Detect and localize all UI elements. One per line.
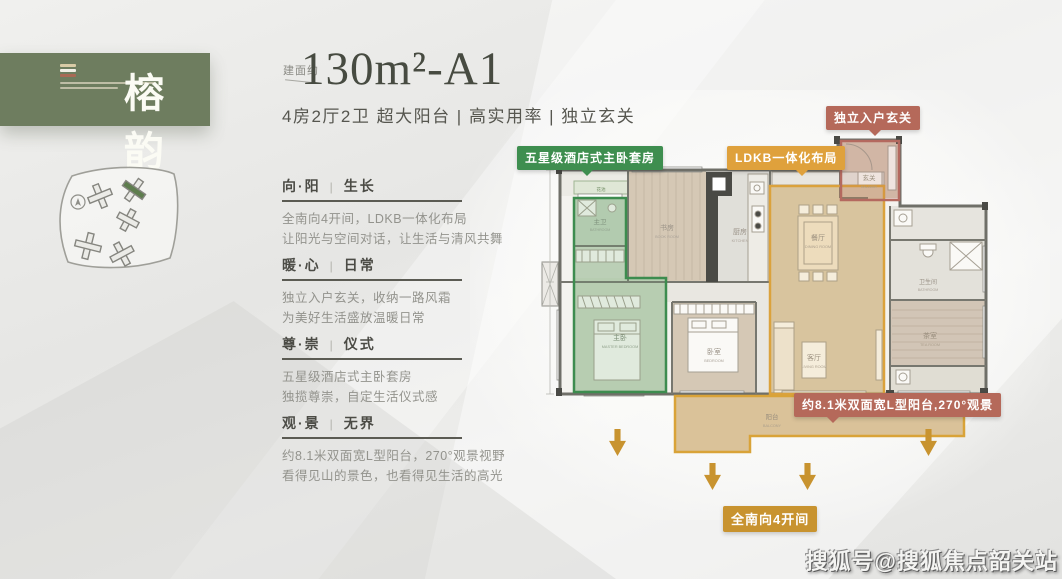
section-view: 观·景|无界 约8.1米双面宽L型阳台，270°观景视野 看得见山的景色，也看得… — [282, 413, 532, 486]
section-key: 观·景 — [282, 415, 321, 431]
section-honor: 尊·崇|仪式 五星级酒店式主卧套房 独揽尊崇，自定生活仪式感 — [282, 334, 532, 407]
entry-highlight — [841, 141, 899, 200]
section-line: 看得见山的景色，也看得见生活的高光 — [282, 467, 532, 487]
room-label-en: TEA ROOM — [920, 343, 940, 347]
brand-header: 榕韵 — [0, 53, 210, 126]
section-rule — [282, 358, 462, 360]
section-heading: 观·景|无界 — [282, 413, 532, 431]
room-label-en: HALLWAY — [861, 185, 878, 189]
section-sun: 向·阳|生长 全南向4开间，LDKB一体化布局 让阳光与空间对话，让生活与清风共… — [282, 176, 532, 249]
section-warm: 暖·心|日常 独立入户玄关，收纳一路风霜 为美好生活盛放温暖日常 — [282, 255, 532, 328]
badge-entry: 独立入户玄关 — [826, 106, 920, 130]
badge-south-facing: 全南向4开间 — [723, 506, 817, 532]
badge-ldkb: LDKB一体化布局 — [727, 146, 845, 170]
room-label: 书房 — [660, 223, 674, 232]
section-key: 尊·崇 — [282, 336, 321, 352]
room-label: 主卧 — [613, 333, 627, 342]
section-rule — [282, 200, 462, 202]
section-body: 约8.1米双面宽L型阳台，270°观景视野 看得见山的景色，也看得见生活的高光 — [282, 447, 532, 486]
section-heading: 向·阳|生长 — [282, 176, 532, 194]
room-label-en: BATHROOM — [590, 228, 611, 232]
section-value: 日常 — [344, 257, 376, 273]
flue-duct — [712, 177, 726, 191]
section-line: 约8.1米双面宽L型阳台，270°观景视野 — [282, 447, 532, 467]
section-heading: 尊·崇|仪式 — [282, 334, 532, 352]
room-label: 卫生间 — [919, 278, 937, 286]
badge-balcony: 约8.1米双面宽L型阳台,270°观景 — [794, 393, 1001, 417]
room-label: 餐厅 — [811, 233, 825, 242]
room-label: 花池 — [597, 186, 606, 193]
section-separator: | — [330, 259, 335, 273]
section-separator: | — [330, 417, 335, 431]
room-label: 客厅 — [807, 353, 821, 362]
room-label-en: LIVING ROOM — [801, 365, 826, 369]
dimension-line — [546, 170, 554, 394]
room-label: 茶室 — [923, 331, 937, 340]
corridor-strip — [756, 302, 770, 394]
section-value: 生长 — [344, 178, 376, 194]
room-label-en: BEDROOM — [704, 359, 724, 363]
site-sketch — [42, 158, 192, 280]
section-line: 让阳光与空间对话，让生活与清风共舞 — [282, 230, 532, 250]
room-label: 阳台 — [766, 412, 779, 421]
room-label-en: DINING ROOM — [805, 245, 831, 249]
room-label-en: BATHROOM — [918, 288, 939, 292]
watermark: 搜狐号@搜狐焦点韶关站 — [806, 544, 1058, 576]
brand-logo-icon — [60, 64, 76, 77]
section-line: 全南向4开间，LDKB一体化布局 — [282, 210, 532, 230]
section-body: 全南向4开间，LDKB一体化布局 让阳光与空间对话，让生活与清风共舞 — [282, 210, 532, 249]
room-label-en: BALCONY — [763, 424, 782, 428]
section-rule — [282, 279, 462, 281]
room-label: 卧室 — [707, 347, 721, 356]
section-rule — [282, 437, 462, 439]
section-separator: | — [330, 180, 335, 194]
feature-sections: 向·阳|生长 全南向4开间，LDKB一体化布局 让阳光与空间对话，让生活与清风共… — [282, 176, 532, 492]
section-line: 独揽尊崇，自定生活仪式感 — [282, 388, 532, 408]
section-line: 独立入户玄关，收纳一路风霜 — [282, 289, 532, 309]
badge-master-suite: 五星级酒店式主卧套房 — [517, 146, 663, 170]
section-value: 仪式 — [344, 336, 376, 352]
section-heading: 暖·心|日常 — [282, 255, 532, 273]
page-title: 130m²-A1 — [301, 42, 503, 96]
ldkb-highlight — [770, 186, 884, 394]
section-key: 向·阳 — [282, 178, 321, 194]
section-line: 五星级酒店式主卧套房 — [282, 368, 532, 388]
section-key: 暖·心 — [282, 257, 321, 273]
room-label-en: BOOK ROOM — [655, 235, 679, 239]
section-value: 无界 — [344, 415, 376, 431]
room-label-en: KITCHEN — [732, 239, 749, 243]
section-body: 五星级酒店式主卧套房 独揽尊崇，自定生活仪式感 — [282, 368, 532, 407]
section-body: 独立入户玄关，收纳一路风霜 为美好生活盛放温暖日常 — [282, 289, 532, 328]
page-subtitle: 4房2厅2卫 超大阳台 | 高实用率 | 独立玄关 — [282, 102, 635, 127]
room-label: 玄关 — [863, 173, 877, 182]
section-line: 为美好生活盛放温暖日常 — [282, 309, 532, 329]
room-label: 主卫 — [594, 217, 608, 226]
room-label: 厨房 — [733, 227, 747, 236]
section-separator: | — [330, 338, 335, 352]
page: { "brand": { "name": "榕韵" }, "title": { … — [0, 0, 1062, 579]
room-label-en: MASTER BEDROOM — [602, 345, 639, 349]
